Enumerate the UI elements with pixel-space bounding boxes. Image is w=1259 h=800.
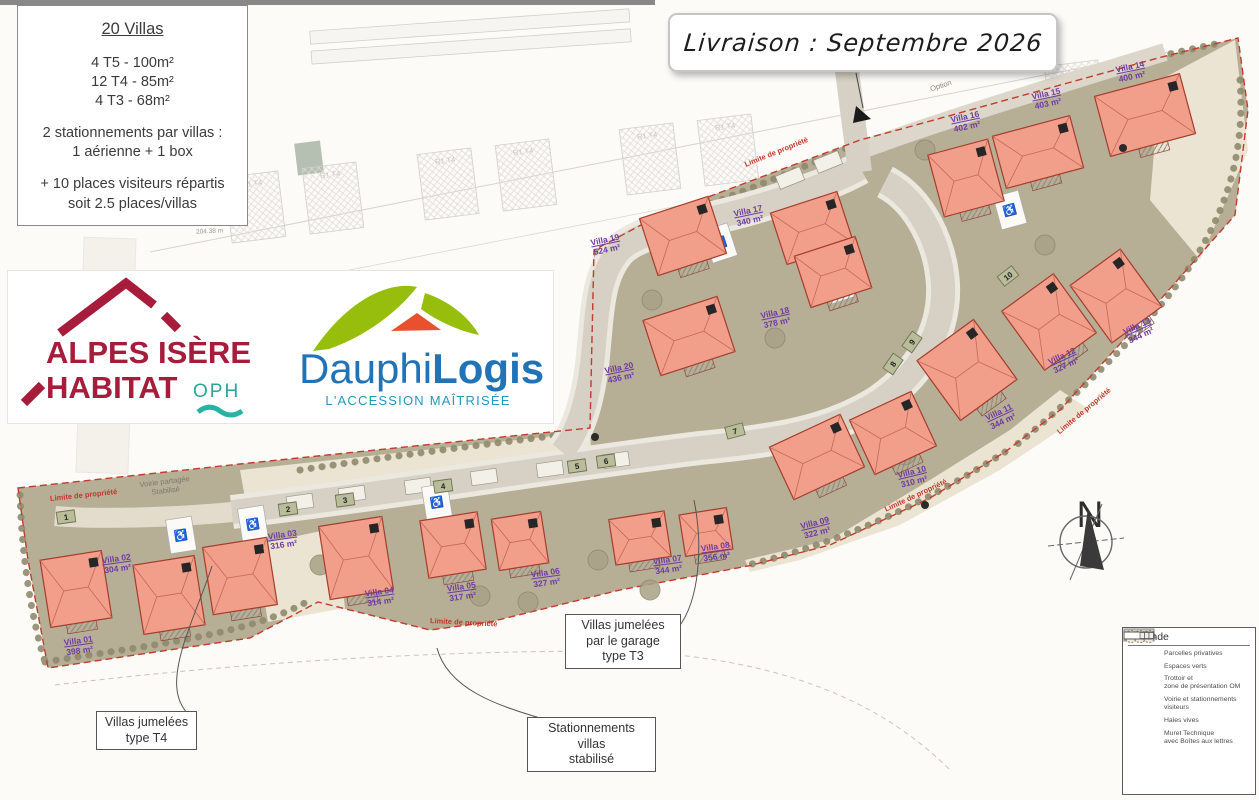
legend-item-haies: Haies vives [1128,717,1250,725]
tree [640,580,660,600]
alpes-line1: ALPES ISÈRE [46,335,251,370]
info-unit-line: 4 T5 - 100m² [18,54,247,73]
tree [765,328,785,348]
dimension-label: 204.38 m [196,227,223,236]
villa-label: Villa 08356 m² [700,541,732,564]
villa-label: Villa 06327 m² [530,567,562,590]
callout-t3: Villas jumelées par le garage type T3 [565,614,681,669]
info-parking-line: 1 aérienne + 1 box [18,143,247,162]
visitor-parking-marker: 6 [596,454,615,468]
neighbor-plot: R1 T4 [619,123,681,195]
north-arrow: N [1040,496,1140,621]
wheelchair-icon: ♿ [245,517,261,532]
info-title: 20 Villas [18,19,247,41]
tree [1035,235,1055,255]
callout-stationnements: Stationnements villas stabilisé [527,717,656,772]
visitor-parking-marker: 1 [56,510,75,524]
villa-label: Villa 04314 m² [364,586,396,609]
alpes-line2: HABITAT [46,370,177,405]
alpes-oph: OPH [193,381,240,402]
visitor-parking-marker: 3 [335,493,354,507]
villa-label: Villa 07344 m² [652,554,684,577]
driveway: ♿ [238,505,269,543]
villa-label: Villa 01398 m² [63,635,95,658]
neighbor-plot: R1 T4 [302,162,364,234]
info-parking-line: 2 stationnements par villas : [18,124,247,143]
villa-label: Villa 03316 m² [267,529,299,552]
tree [588,550,608,570]
villa-label: Villa 05317 m² [446,581,478,604]
dauphi-tagline: L'ACCESSION MAÎTRISÉE [325,393,510,408]
compass-icon [1040,496,1132,584]
info-visitors-line: + 10 places visiteurs répartis [18,175,247,194]
tree [642,290,662,310]
delivery-banner: Livraison : Septembre 2026 [668,13,1058,72]
site-plan-page: R1 T4R1 T4R1 T4R1 T4R1 T4R1 T4R1 T4R1 T4 [0,0,1259,800]
neighbor-plot: R1 T4 [495,139,557,211]
villa-label: Villa 02304 m² [101,553,133,576]
visitor-parking-marker: 4 [433,479,452,493]
wheelchair-icon: ♿ [429,495,445,510]
tree [518,592,538,612]
visitor-parking-marker: 2 [278,502,297,516]
delivery-banner-text: Livraison : Septembre 2026 [682,29,1043,57]
logo-panel: ALPES ISÈRE HABITAT OPH DauphiLogis L'AC… [8,271,553,423]
wheelchair-icon: ♿ [173,528,189,543]
legend-item-trottoir: Trottoir etzone de présentation OM [1128,675,1250,691]
neighbor-plot: R1 T4 [697,114,759,186]
legend-item-voirie: Voirie et stationnementsvisiteurs [1128,696,1250,712]
legend: Légende Parcelles privatives Espaces ver… [1122,627,1256,795]
dauphi-part2: Logis [432,345,544,392]
callout-t4: Villas jumelées type T4 [96,711,197,750]
legend-item-espaces-verts: Espaces verts [1128,663,1250,671]
info-box: 20 Villas 4 T5 - 100m² 12 T4 - 85m² 4 T3… [17,5,248,226]
visitor-parking-marker: 5 [567,459,586,473]
legend-item-muret: Muret Techniqueavec Boîtes aux lettres [1128,730,1250,746]
svg-text:DauphiLogis: DauphiLogis [299,345,544,392]
legend-item-parcelles: Parcelles privatives [1128,650,1250,658]
neighbor-plot: R1 T4 [417,148,479,220]
alpes-isere-habitat-logo: ALPES ISÈRE HABITAT OPH [24,283,251,415]
info-visitors-line: soit 2.5 places/villas [18,195,247,214]
dauphilogis-logo: DauphiLogis L'ACCESSION MAÎTRISÉE [299,286,544,408]
info-unit-line: 12 T4 - 85m² [18,73,247,92]
dauphi-part1: Dauphi [299,345,432,392]
driveway: ♿ [166,516,197,554]
info-unit-line: 4 T3 - 68m² [18,92,247,111]
